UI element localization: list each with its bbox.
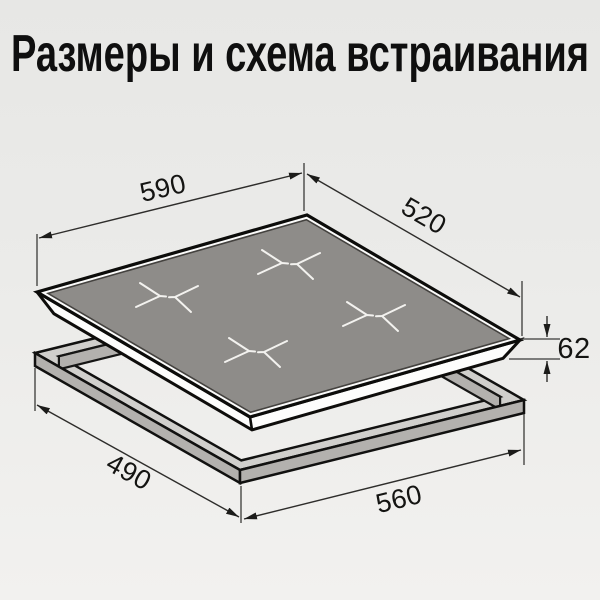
diagram-canvas: Размеры и схема встраивания 490 560 xyxy=(0,0,600,600)
page-title: Размеры и схема встраивания xyxy=(11,25,589,83)
installation-diagram-page: Размеры и схема встраивания 490 560 xyxy=(0,0,600,600)
hob-glass-surface xyxy=(48,220,509,413)
dim-hob-height: 62 xyxy=(509,316,591,382)
dim-label-hob-width: 590 xyxy=(137,168,189,208)
dim-label-hob-depth: 520 xyxy=(396,191,451,240)
dim-label-hob-height: 62 xyxy=(557,333,590,365)
dim-label-cutout-depth: 490 xyxy=(101,448,156,497)
